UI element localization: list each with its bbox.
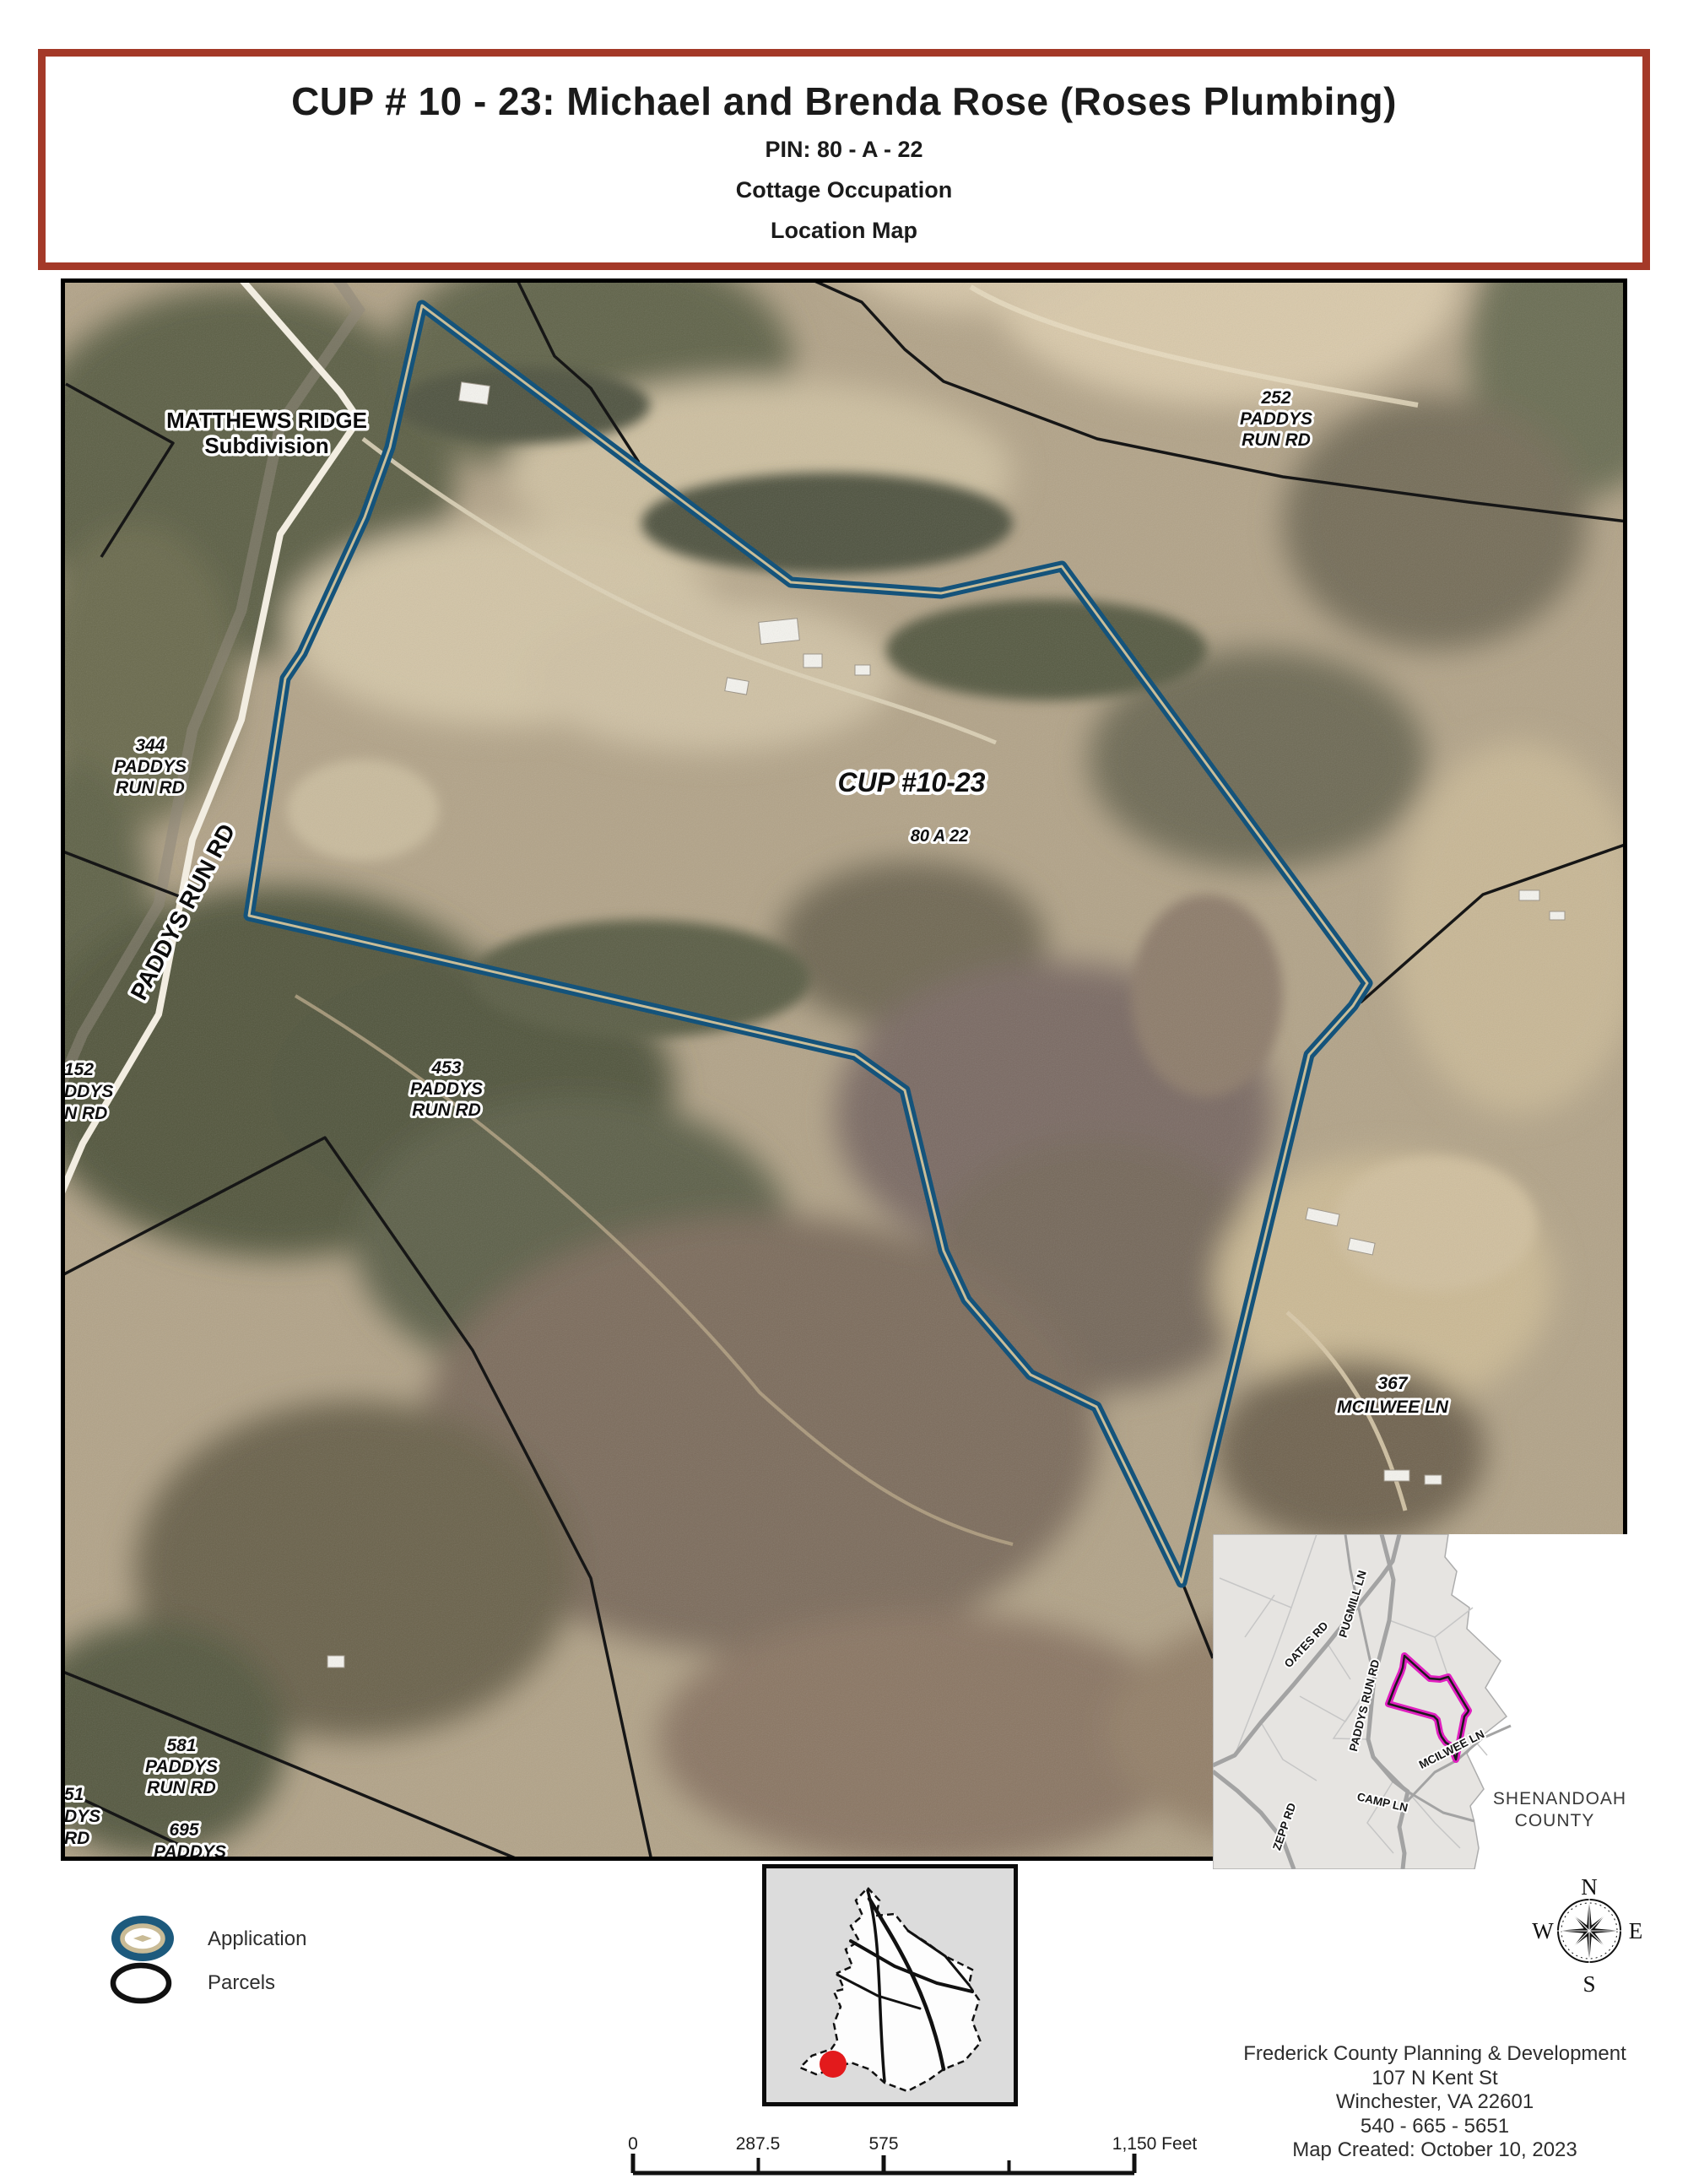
label-695: 695 (169, 1820, 198, 1840)
label-367-2: MCILWEE LN (1337, 1397, 1449, 1417)
compass-n: N (1581, 1874, 1598, 1900)
agency-street: 107 N Kent St (1215, 2067, 1654, 2091)
agency-city: Winchester, VA 22601 (1215, 2090, 1654, 2115)
map-created-date: Map Created: October 10, 2023 (1215, 2138, 1654, 2163)
label-581: 581 (166, 1736, 196, 1755)
pin-line: PIN: 80 - A - 22 (46, 129, 1642, 170)
application-symbol (111, 1916, 174, 1961)
label-453-3: RUN RD (412, 1100, 481, 1120)
agency-phone: 540 - 665 - 5651 (1215, 2115, 1654, 2139)
label-252-3: RUN RD (1242, 430, 1311, 450)
label-581-2: PADDYS (145, 1757, 218, 1776)
map-title: CUP # 10 - 23: Michael and Brenda Rose (… (46, 78, 1642, 124)
legend-label-parcels: Parcels (208, 1971, 275, 1994)
label-651: 51 (64, 1785, 84, 1804)
title-block: CUP # 10 - 23: Michael and Brenda Rose (… (38, 49, 1650, 270)
scale-tick-287: 287.5 (736, 2134, 781, 2154)
parcels-symbol (113, 1965, 169, 2001)
label-152-2: DDYS (64, 1082, 113, 1101)
vicinity-inset-map: OATES RD PUGMILL LN PADDYS RUN RD MCILWE… (1213, 1534, 1627, 1869)
label-651-2: DYS (64, 1807, 100, 1826)
compass-s: S (1582, 1971, 1595, 1997)
label-pin: 80 A 22 (911, 827, 969, 846)
label-367: 367 (1377, 1374, 1408, 1393)
label-453-2: PADDYS (410, 1079, 483, 1099)
label-matthews-ridge: MATTHEWS RIDGE (166, 408, 367, 433)
county-locator-inset (762, 1864, 1018, 2106)
scale-tick-1150: 1,150 Feet (1112, 2134, 1198, 2154)
compass-w: W (1532, 1918, 1554, 1943)
label-152: 152 (64, 1060, 94, 1079)
label-matthews-ridge-2: Subdivision (204, 433, 328, 458)
label-252: 252 (1260, 388, 1290, 408)
label-581-3: RUN RD (147, 1778, 216, 1797)
label-651-3: RD (64, 1829, 89, 1848)
county-label-county: COUNTY (1515, 1811, 1595, 1830)
scale-tick-0: 0 (628, 2134, 638, 2154)
compass-e: E (1629, 1918, 1643, 1943)
label-cup-number: CUP #10-23 (838, 767, 986, 797)
agency-name: Frederick County Planning & Development (1215, 2042, 1654, 2067)
label-344-2: PADDYS (114, 757, 187, 776)
county-label-shenandoah: SHENANDOAH (1493, 1789, 1626, 1808)
label-252-2: PADDYS (1240, 409, 1312, 429)
scale-labels: 0 287.5 575 1,150 Feet (628, 2134, 1197, 2154)
use-line: Cottage Occupation (46, 170, 1642, 210)
scale-bar: 0 287.5 575 1,150 Feet (591, 2097, 1232, 2181)
scale-tick-575: 575 (868, 2134, 898, 2154)
label-453: 453 (430, 1058, 461, 1078)
north-arrow: N E S W (1515, 1861, 1667, 2013)
label-344: 344 (135, 736, 165, 755)
map-subtitle: PIN: 80 - A - 22 Cottage Occupation Loca… (46, 129, 1642, 251)
map-document-page: CUP # 10 - 23: Michael and Brenda Rose (… (0, 0, 1688, 2184)
label-344-3: RUN RD (116, 778, 185, 797)
legend-label-application: Application (208, 1927, 306, 1950)
label-152-3: N RD (64, 1104, 107, 1123)
site-locator-dot (820, 2051, 847, 2078)
legend: Application Parcels (84, 1903, 439, 2013)
maptype-line: Location Map (46, 210, 1642, 251)
agency-contact-block: Frederick County Planning & Development … (1215, 2042, 1654, 2163)
